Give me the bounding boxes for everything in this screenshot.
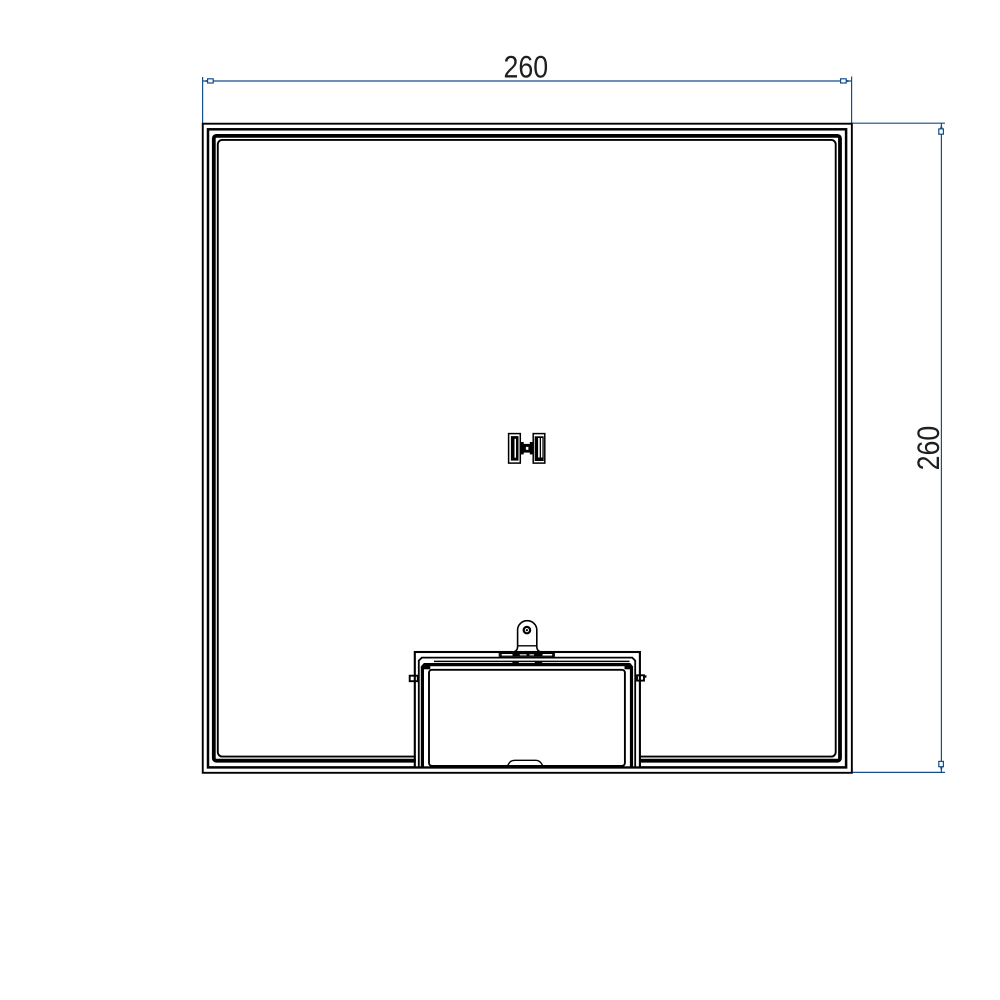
svg-text:260: 260 — [910, 426, 946, 471]
svg-text:260: 260 — [504, 49, 549, 85]
